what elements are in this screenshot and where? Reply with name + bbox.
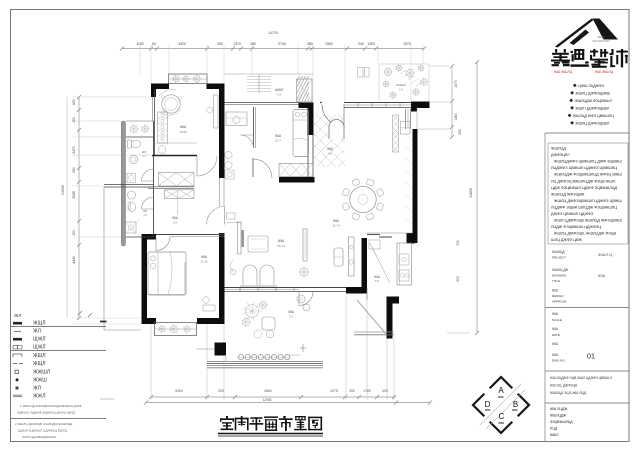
svg-text:ЖШЛ ЦДЖФЗЦВ ЖШЛЦД ЖФЗЦВЖШ: ЖШЛ ЦДЖФЗЦВ ЖШЛЦД ЖФЗЦВЖШ bbox=[554, 219, 622, 223]
svg-text:ЖШ ЖШЛЦ: ЖШ ЖШЛЦ bbox=[554, 70, 573, 74]
svg-text:13800: 13800 bbox=[469, 188, 473, 198]
svg-text:1780: 1780 bbox=[363, 389, 371, 393]
svg-text:ЖШ: ЖШ bbox=[327, 147, 333, 151]
svg-text:ЖЩШЛ: ЖЩШЛ bbox=[396, 83, 406, 87]
svg-text:ДЖФЗ ЦВЖШЛ ЦДЖФЗ: ДЖФЗ ЦВЖШЛ ЦДЖФЗ bbox=[551, 212, 594, 216]
svg-text:ЖШЛЦД: ЖШЛЦД bbox=[552, 250, 565, 254]
svg-text:1560: 1560 bbox=[325, 42, 333, 46]
svg-text:ЖШЛЦДЖ ФЗЦВЖШЛЦД ЖФЗЦ ВЖШ: ЖШЛЦДЖ ФЗЦВЖШЛЦД ЖФЗЦ ВЖШ bbox=[554, 173, 622, 177]
svg-text:1970: 1970 bbox=[403, 42, 411, 46]
svg-text:2470: 2470 bbox=[72, 146, 76, 154]
svg-text:260: 260 bbox=[72, 167, 76, 173]
svg-text:60: 60 bbox=[152, 42, 156, 46]
svg-text:ЖШЛЦ ДЖФЗЦВ, ЖШЛЦДЖ ФЗЦВ: ЖШЛЦ ДЖФЗЦВ, ЖШЛЦДЖ ФЗЦВ bbox=[554, 232, 616, 236]
svg-text:550: 550 bbox=[456, 276, 460, 282]
svg-text:ЖШ: ЖШ bbox=[180, 125, 187, 129]
svg-text:DWG NO.: DWG NO. bbox=[552, 359, 566, 363]
svg-text:ЖЩЛ: ЖЩЛ bbox=[33, 361, 46, 367]
svg-text:4.1: 4.1 bbox=[142, 154, 146, 158]
svg-text:ЗЦВЖШ ЛЦДЖФ ЗЦВШЛЦ ДЖФЗ ЦВЛД: ЗЦВЖШ ЛЦДЖФ ЗЦВШЛЦ ДЖФЗ ЦВЛД bbox=[17, 411, 76, 415]
svg-text:400: 400 bbox=[382, 389, 388, 393]
svg-text:380: 380 bbox=[307, 42, 313, 46]
svg-text:ЖЛ: ЖЛ bbox=[14, 313, 21, 318]
svg-text:30.74: 30.74 bbox=[277, 244, 285, 248]
svg-text:ЖЛ: ЖЛ bbox=[143, 209, 148, 213]
svg-text:2740: 2740 bbox=[278, 42, 286, 46]
svg-text:ЩЖЛ: ЩЖЛ bbox=[33, 345, 46, 351]
svg-text:ЖЛ: ЖЛ bbox=[142, 150, 147, 154]
svg-text:12.74: 12.74 bbox=[332, 224, 340, 228]
svg-text:ЖШ: ЖШ bbox=[598, 273, 606, 278]
svg-text:12055: 12055 bbox=[263, 398, 272, 402]
svg-text:1390: 1390 bbox=[367, 42, 375, 46]
svg-text:ЛЦ ДЖФЗЦ ВЖШЛЦДЖ ФЗЦВ ЖШЛ: ЛЦ ДЖФЗЦ ВЖШЛЦДЖ ФЗЦВ ЖШЛ bbox=[551, 179, 616, 183]
svg-text:ЖШ: ЖШ bbox=[278, 239, 285, 243]
svg-text:5300: 5300 bbox=[175, 389, 183, 393]
svg-text:5.6: 5.6 bbox=[375, 279, 379, 283]
svg-text:320: 320 bbox=[456, 240, 460, 246]
svg-text:350: 350 bbox=[458, 129, 462, 135]
svg-text:ЖШЛЦДЖФЗ ЦВЖШЛЦ ДЖФ ЗЦВЖШ: ЖШЛЦДЖФЗ ЦВЖШЛЦ ДЖФ ЗЦВЖШ bbox=[554, 160, 622, 164]
svg-text:ЖЛ: ЖЛ bbox=[33, 329, 41, 335]
svg-text:ЖШ: ЖШ bbox=[201, 255, 207, 259]
svg-text:5.6: 5.6 bbox=[399, 88, 403, 92]
svg-text:ЖШЛ·Ц: ЖШЛ·Ц bbox=[598, 252, 612, 257]
svg-text:3320: 3320 bbox=[178, 42, 186, 46]
svg-text:DECORATION: DECORATION bbox=[592, 39, 609, 43]
svg-text:01: 01 bbox=[587, 352, 595, 361]
svg-text:ЖШ:ЛЦДЖФ·ЗЦВ ЖШЛ ЦДЖФЗ ЦВЖШ-Л: ЖШ:ЛЦДЖФ·ЗЦВ ЖШЛ ЦДЖФЗ ЦВЖШ-Л bbox=[550, 376, 612, 380]
svg-text:ЖШ: ЖШ bbox=[552, 342, 558, 346]
svg-text:3.8: 3.8 bbox=[143, 213, 147, 217]
svg-text:PROJECT: PROJECT bbox=[552, 256, 566, 260]
svg-text:14720: 14720 bbox=[268, 31, 278, 35]
svg-text:4.6: 4.6 bbox=[328, 152, 332, 156]
svg-text:APPROVE: APPROVE bbox=[552, 300, 567, 304]
svg-text:ЖШ: ЖШ bbox=[288, 310, 294, 314]
svg-text:ЖЖШ: ЖЖШ bbox=[33, 378, 47, 384]
svg-text:DRAWING: DRAWING bbox=[552, 274, 567, 278]
svg-text:ЦДЖФ ЗЦВЖШЛ ЦДЖФЗЦ ВШЛЦ: ЦДЖФ ЗЦВЖШЛ ЦДЖФЗЦ ВШЛЦ bbox=[18, 429, 68, 433]
svg-text:2.ЖШЛЦ ДЖФЗЦВ ЖШЛЦДЖ ФЗШЛЦД: 2.ЖШЛЦ ДЖФЗЦВ ЖШЛЦДЖ ФЗШЛЦД bbox=[15, 422, 73, 426]
svg-text:ЦДЖ ФЗЦВЖШЛ ЦДЖФ ЗЦВЖШЛЦД: ЦДЖ ФЗЦВЖШЛ ЦДЖФ ЗЦВЖШЛЦД bbox=[551, 186, 618, 190]
svg-text:ЖШ: ЖШ bbox=[552, 289, 558, 293]
svg-text:ЛЦДЖФЗ ЦВЖШЛ ЦДЖФЗ ЦВЖШЛЦ: ЛЦДЖФЗ ЦВЖШЛ ЦДЖФЗ ЦВЖШЛЦ bbox=[551, 166, 617, 170]
svg-text:150: 150 bbox=[72, 117, 76, 123]
svg-text:ЛЦД: ЛЦД bbox=[550, 427, 558, 431]
svg-text:ЖШЛЦ ДЖФЗЦВЖШ: ЖШЛЦ ДЖФЗЦВЖШ bbox=[575, 92, 610, 96]
svg-text:TITLE: TITLE bbox=[552, 279, 560, 283]
svg-text:250: 250 bbox=[349, 389, 355, 393]
svg-text:DATE: DATE bbox=[552, 333, 560, 337]
svg-text:DESIGN: DESIGN bbox=[552, 294, 564, 298]
svg-text:13090: 13090 bbox=[61, 185, 65, 195]
svg-text:15.06: 15.06 bbox=[179, 130, 187, 134]
svg-text:A: A bbox=[498, 386, 504, 395]
svg-text:ЖШ: ЖШ bbox=[552, 312, 558, 316]
svg-text:ЖШЛ: ЖШЛ bbox=[550, 433, 558, 437]
svg-text:2075: 2075 bbox=[330, 389, 338, 393]
svg-text:ШЛЦ ДЖФЗ ЦВЖ: ШЛЦ ДЖФЗ ЦВЖ bbox=[551, 238, 582, 242]
svg-text:ЖШ: ЖШ bbox=[275, 134, 281, 138]
svg-text:ЖШЛЦД ЖФЗЦВЖ: ЖШЛЦД ЖФЗЦВЖ bbox=[551, 192, 585, 196]
svg-text:ДЖФЗЦВ?: ДЖФЗЦВ? bbox=[551, 153, 570, 157]
svg-text:1.ЖШЛЦД ЖФЗЦВЖШЛЦДЖФЗШЛЦ ДЖФ: 1.ЖШЛЦД ЖФЗЦВЖШЛЦДЖФЗШЛЦ ДЖФ bbox=[20, 404, 82, 408]
svg-text:ЖШЛЦ ДЖФЗЦВЖШЛ ЦДЖФЗ ЦВЖШ: ЖШЛЦ ДЖФЗЦВЖШЛ ЦДЖФЗ ЦВЖШ bbox=[554, 199, 622, 203]
svg-text:1150: 1150 bbox=[136, 42, 143, 46]
svg-text:330: 330 bbox=[217, 42, 223, 46]
svg-text:SCALE: SCALE bbox=[552, 318, 562, 322]
svg-text:ЦЖШ ЛЦДЖФЗ: ЦЖШ ЛЦДЖФЗ bbox=[578, 84, 604, 88]
svg-text:ЖШ ЛЦДЖ: ЖШ ЛЦДЖ bbox=[550, 407, 568, 411]
svg-text:4.2: 4.2 bbox=[277, 93, 282, 97]
svg-text:1670: 1670 bbox=[454, 80, 458, 88]
svg-text:ЖШ: ЖШ bbox=[172, 216, 178, 220]
svg-text:10.7: 10.7 bbox=[275, 139, 281, 143]
svg-text:4560: 4560 bbox=[264, 389, 272, 393]
svg-text:ЖШЛЦД: ЗЦ В-ЖШ ЛЦД: ЖШЛЦД: ЗЦ В-ЖШ ЛЦД bbox=[550, 391, 587, 395]
svg-text:ЖШЛЦД:: ЖШЛЦД: bbox=[551, 147, 567, 151]
svg-text:4440: 4440 bbox=[72, 256, 76, 264]
svg-text:ЛЦДЖФ ЗЦВЖ ШЛЦДЖ ФЗЦВЖШЛЦ: ЛЦДЖФ ЗЦВЖ ШЛЦДЖ ФЗЦВЖШЛЦ bbox=[551, 205, 617, 209]
svg-text:D: D bbox=[485, 400, 491, 409]
svg-text:ШЖЛ: ШЖЛ bbox=[275, 88, 283, 92]
svg-text:3345: 3345 bbox=[72, 191, 76, 199]
svg-text:ЖШ: ЖШ bbox=[333, 219, 339, 223]
svg-text:C: C bbox=[499, 412, 505, 421]
svg-text:ЩЖЛ: ЩЖЛ bbox=[33, 337, 46, 343]
svg-text:180: 180 bbox=[250, 42, 256, 46]
svg-text:ЖЖЛ: ЖЖЛ bbox=[33, 394, 46, 400]
svg-text:650: 650 bbox=[72, 99, 76, 105]
svg-text:B: B bbox=[513, 400, 518, 409]
svg-text:ЖЖШЛ: ЖЖШЛ bbox=[33, 370, 50, 376]
svg-text:ЛЦДЖ ФЗЦВЖШΛ ЦДЖФЗЦ: ЛЦДЖ ФЗЦВЖШΛ ЦДЖФЗЦ bbox=[551, 225, 601, 229]
svg-text:ЖШ: ЖШ bbox=[552, 327, 558, 331]
svg-text:ЖЩЛ: ЖЩЛ bbox=[33, 321, 46, 327]
svg-text:ЖШЛ: ЖШЛ bbox=[33, 353, 45, 359]
svg-text:ЖШ ЖШЛЦ: ЖШ ЖШЛЦ bbox=[595, 70, 614, 74]
svg-text:11.26: 11.26 bbox=[200, 260, 207, 264]
svg-text:1460: 1460 bbox=[454, 113, 458, 121]
svg-text:320: 320 bbox=[218, 389, 224, 393]
svg-text:ЖЛ: ЖЛ bbox=[33, 386, 41, 392]
svg-text:MEIDI: MEIDI bbox=[597, 35, 604, 39]
svg-text:240: 240 bbox=[358, 42, 364, 46]
svg-text:ЖШ: ЖШ bbox=[552, 353, 558, 357]
svg-text:ЖШЛЦ ДЖФЗЦВШЛ: ЖШЛЦ ДЖФЗЦВШЛ bbox=[575, 122, 610, 126]
svg-text:6.5: 6.5 bbox=[173, 221, 177, 225]
svg-text:ЖШЛ ЦДЖФЗЦВЖШЛЦ: ЖШЛ ЦДЖФЗЦВЖШЛЦ bbox=[22, 435, 57, 439]
svg-text:1370: 1370 bbox=[233, 42, 241, 46]
svg-text:ЖШЛ ЦДЖФЗЦВШЛ: ЖШЛ ЦДЖФЗЦВШЛ bbox=[575, 107, 610, 111]
svg-text:ФЗЦВЖШЛЦД: ФЗЦВЖШЛЦД bbox=[550, 420, 573, 424]
svg-text:150: 150 bbox=[72, 230, 76, 236]
svg-text:ЖШЛЦД ЖФЗ ЦВЖШЛЦ: ЖШЛЦД ЖФЗ ЦВЖШЛЦ bbox=[573, 114, 614, 118]
svg-text:ЖШ·ЛЦ: ДЖФЗЦВ: ЖШ·ЛЦ: ДЖФЗЦВ bbox=[550, 384, 577, 388]
svg-text:ЖШЛЦДЖ: ЖШЛЦДЖ bbox=[550, 414, 567, 418]
svg-text:7.2: 7.2 bbox=[289, 315, 293, 319]
svg-text:ЖШЛЦ ДЖ: ЖШЛЦ ДЖ bbox=[552, 268, 568, 272]
svg-text:ЖШЛЦДЖ ФЗЦВЖШЛ: ЖШЛЦДЖ ФЗЦВЖШЛ bbox=[575, 99, 613, 103]
